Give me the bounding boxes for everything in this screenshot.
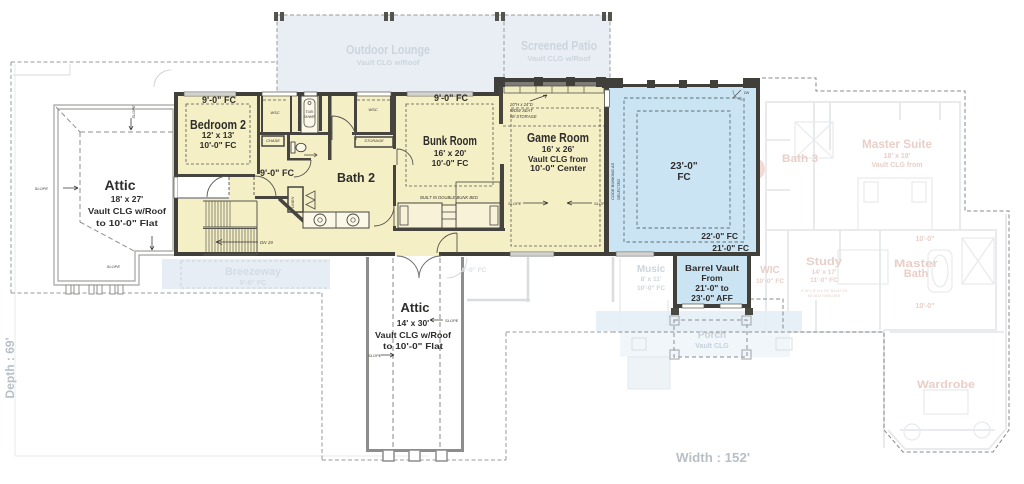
svg-text:SLOPE: SLOPE [594, 201, 608, 206]
svg-text:10'-0" FC: 10'-0" FC [432, 158, 469, 168]
svg-text:SLOPE: SLOPE [445, 318, 459, 323]
svg-text:SLOPE: SLOPE [107, 264, 121, 269]
svg-text:WSC: WSC [270, 110, 279, 115]
svg-text:WDW SEAT: WDW SEAT [510, 108, 533, 113]
svg-text:8' x 11': 8' x 11' [641, 276, 662, 283]
svg-text:SHWR: SHWR [303, 115, 315, 119]
svg-text:to 10'-0" Flat: to 10'-0" Flat [383, 341, 443, 351]
svg-text:W/ STORAGE: W/ STORAGE [510, 114, 537, 119]
svg-text:9'-0" FC: 9'-0" FC [202, 95, 236, 105]
svg-text:18' x 27': 18' x 27' [111, 194, 143, 204]
svg-text:Master Suite: Master Suite [862, 137, 932, 151]
svg-text:23'-0" AFF: 23'-0" AFF [691, 293, 733, 303]
svg-text:Attic: Attic [104, 177, 135, 193]
svg-text:DN: DN [744, 91, 750, 95]
svg-text:WIC: WIC [760, 265, 779, 276]
svg-text:SELECTED: SELECTED [616, 179, 621, 200]
svg-text:14' x 30': 14' x 30' [397, 318, 429, 328]
svg-text:22'-0" FC: 22'-0" FC [701, 231, 738, 241]
svg-text:CODE BUNKING AS: CODE BUNKING AS [610, 162, 615, 200]
svg-text:Outdoor Lounge: Outdoor Lounge [346, 42, 430, 57]
svg-text:Bath 3: Bath 3 [782, 153, 818, 165]
svg-text:18' x 18': 18' x 18' [884, 153, 911, 160]
svg-text:Vault CLG w/Roof: Vault CLG w/Roof [528, 54, 591, 63]
svg-text:21'-0" to: 21'-0" to [695, 283, 728, 293]
svg-text:21'-0" FC: 21'-0" FC [712, 243, 749, 253]
svg-text:16' x 26': 16' x 26' [542, 144, 574, 154]
svg-text:10'-0" FC: 10'-0" FC [756, 278, 784, 285]
svg-text:Bath: Bath [904, 268, 929, 280]
svg-text:Vault CLG w/Roof: Vault CLG w/Roof [88, 206, 166, 216]
svg-text:10'-0" Center: 10'-0" Center [530, 163, 587, 173]
svg-text:9'-0" FC: 9'-0" FC [240, 280, 266, 287]
svg-text:Vault CLG w/Roof: Vault CLG w/Roof [375, 330, 451, 340]
svg-text:Breezeway: Breezeway [225, 266, 282, 278]
svg-text:20"H x 24"D: 20"H x 24"D [509, 102, 533, 107]
svg-text:12' x 13': 12' x 13' [202, 130, 234, 140]
svg-text:Depth : 69': Depth : 69' [3, 337, 17, 398]
svg-text:10'-0" FC: 10'-0" FC [200, 140, 237, 150]
svg-text:Vault CLG w/Roof: Vault CLG w/Roof [357, 58, 420, 67]
svg-text:Width : 152': Width : 152' [676, 450, 750, 465]
svg-text:W/ ADJ SHELVES: W/ ADJ SHELVES [808, 293, 841, 298]
svg-text:11'-0" FC: 11'-0" FC [810, 277, 838, 284]
svg-text:SLOPE: SLOPE [508, 201, 522, 206]
svg-text:DN 19: DN 19 [260, 240, 273, 245]
svg-text:16' x 20': 16' x 20' [434, 148, 466, 158]
svg-text:Vault CLG: Vault CLG [695, 343, 729, 350]
svg-text:SLOPE: SLOPE [368, 353, 382, 358]
svg-text:to 10'-0" Flat: to 10'-0" Flat [96, 218, 158, 228]
svg-text:Screened Patio: Screened Patio [521, 38, 597, 53]
svg-text:Vault CLG from: Vault CLG from [872, 162, 923, 169]
svg-text:BUILT IN DOUBLE BUNK BED: BUILT IN DOUBLE BUNK BED [420, 195, 478, 200]
svg-text:9'-0" FC: 9'-0" FC [434, 93, 468, 103]
svg-text:WSC: WSC [368, 107, 377, 112]
svg-text:Porch: Porch [698, 330, 726, 341]
svg-text:Wardrobe: Wardrobe [917, 379, 975, 391]
svg-text:9'-0" FC: 9'-0" FC [462, 267, 487, 274]
svg-text:FC: FC [677, 172, 690, 183]
svg-text:CHASE: CHASE [266, 138, 280, 143]
svg-text:LINEN: LINEN [291, 197, 295, 208]
svg-text:TUB: TUB [305, 110, 313, 114]
svg-text:23'-0": 23'-0" [670, 161, 697, 172]
svg-text:14' x 17': 14' x 17' [812, 269, 837, 276]
svg-text:10'-0": 10'-0" [916, 303, 935, 310]
svg-text:SLOPE: SLOPE [35, 186, 49, 191]
svg-text:9'-0" FC: 9'-0" FC [260, 168, 294, 178]
svg-text:Attic: Attic [401, 300, 430, 315]
svg-text:Game Room: Game Room [527, 131, 589, 145]
svg-text:SLOPE: SLOPE [131, 105, 136, 119]
svg-text:10'-0": 10'-0" [916, 236, 935, 243]
svg-text:STORAGE: STORAGE [364, 138, 384, 143]
svg-text:From: From [701, 273, 723, 283]
svg-text:10'-0" FC: 10'-0" FC [637, 285, 665, 292]
svg-text:Bunk Room: Bunk Room [423, 133, 477, 148]
svg-text:Music: Music [637, 264, 666, 275]
svg-text:Study: Study [806, 256, 843, 268]
svg-text:Bath 2: Bath 2 [337, 170, 375, 185]
svg-text:Barrel Vault: Barrel Vault [685, 263, 739, 273]
